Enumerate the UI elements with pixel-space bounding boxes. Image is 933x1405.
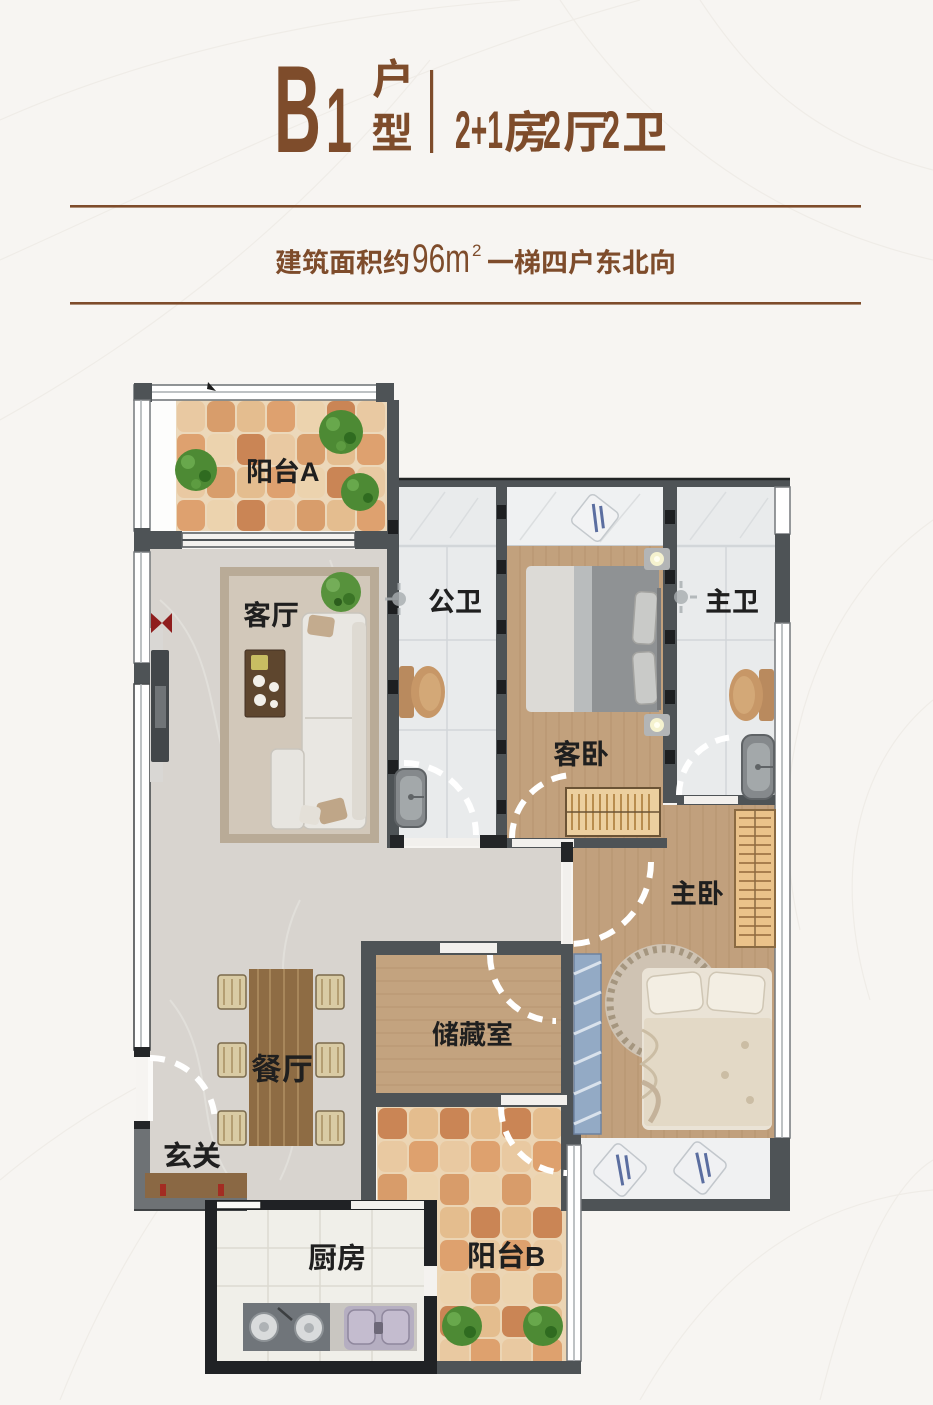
svg-text:2: 2 bbox=[543, 101, 561, 160]
svg-text:2: 2 bbox=[472, 241, 481, 260]
svg-text:B: B bbox=[525, 1241, 545, 1272]
svg-text:96m: 96m bbox=[412, 237, 470, 281]
svg-text:A: A bbox=[300, 457, 320, 487]
svg-text:2: 2 bbox=[602, 101, 620, 160]
svg-text:1: 1 bbox=[326, 70, 352, 172]
svg-text:2+1: 2+1 bbox=[455, 101, 503, 160]
svg-text:B: B bbox=[274, 41, 321, 179]
